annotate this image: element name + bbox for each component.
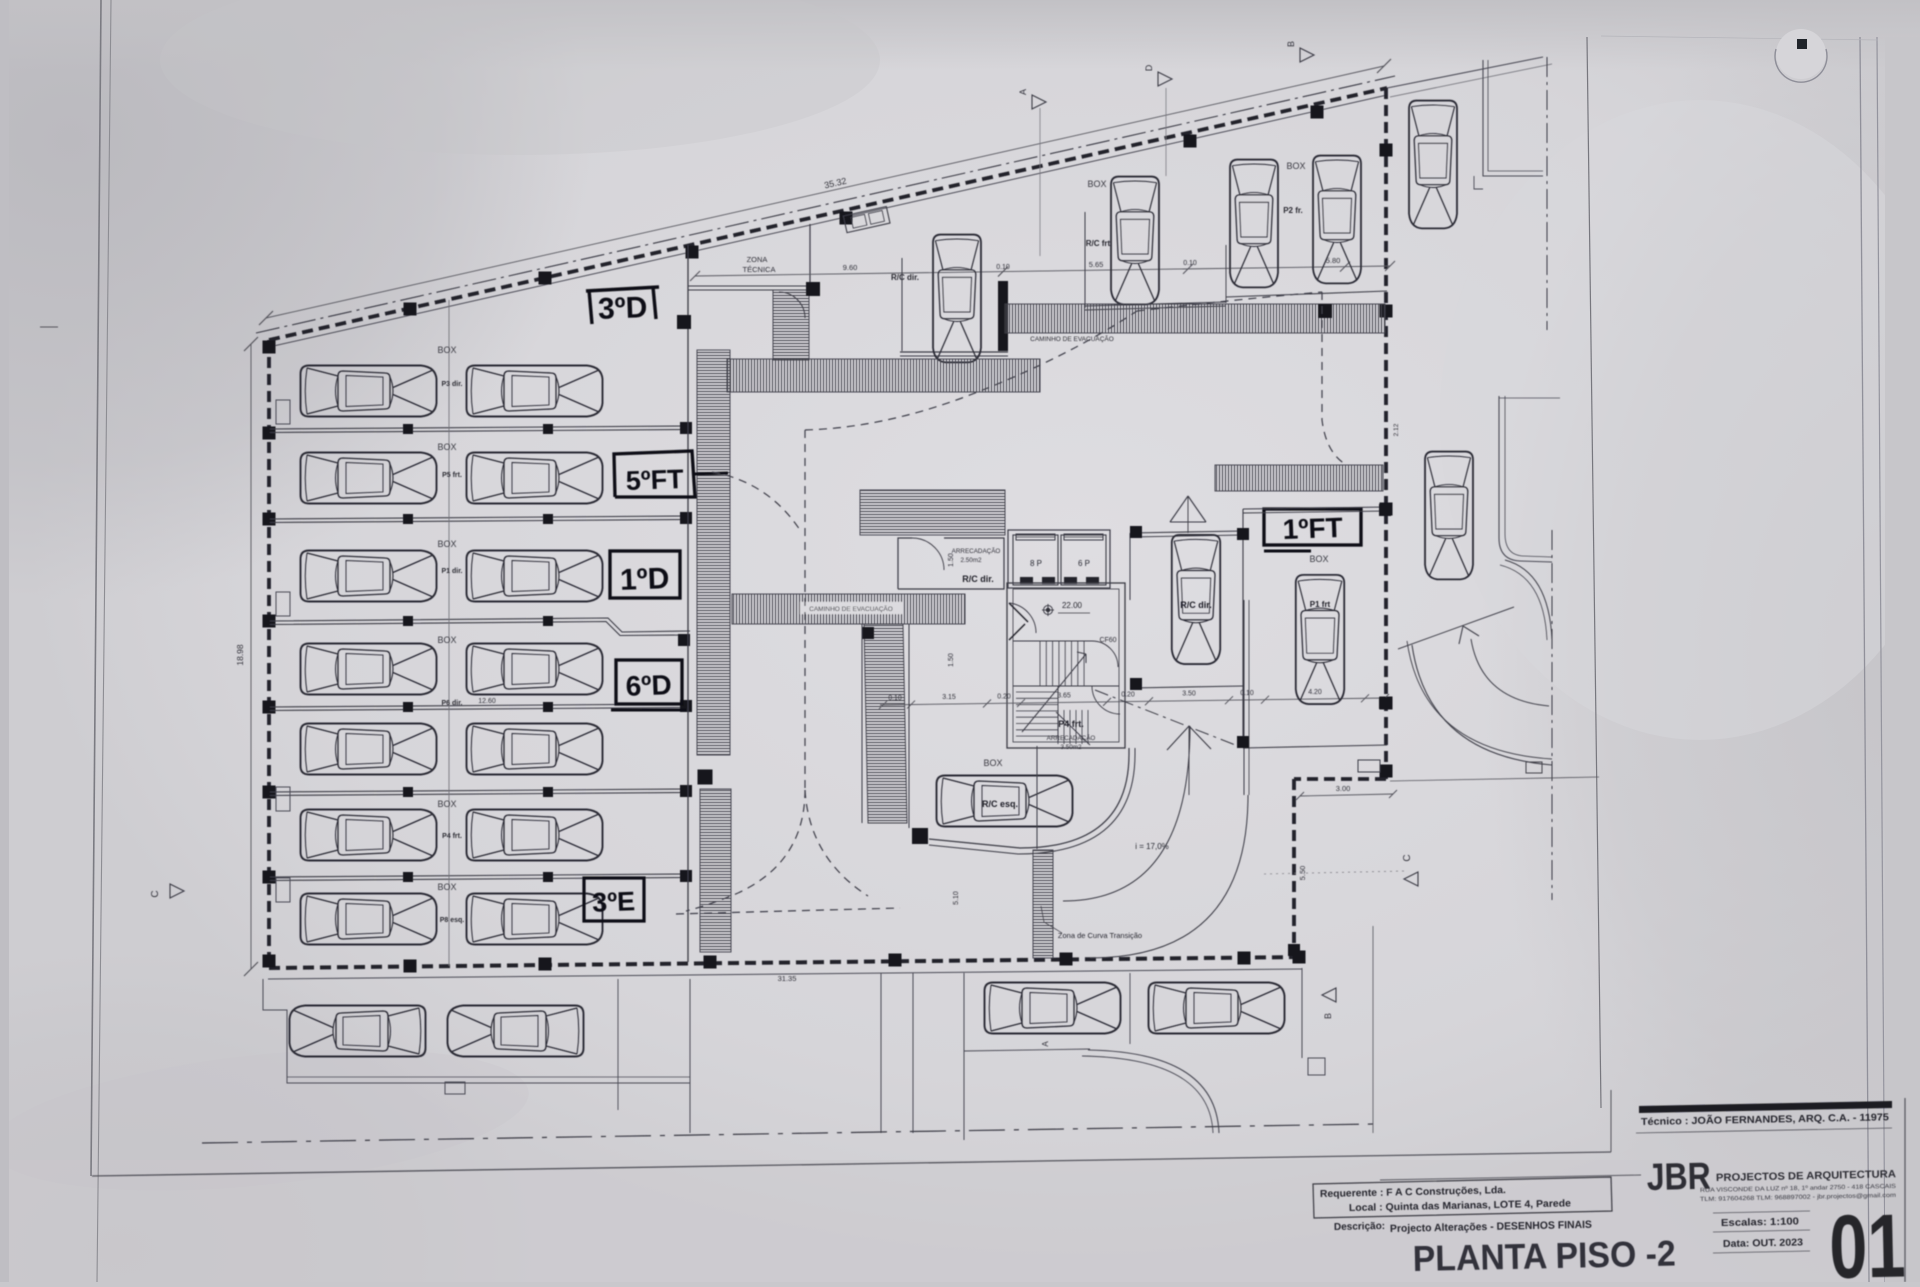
svg-text:ARRECADAÇÃO: ARRECADAÇÃO — [952, 546, 1001, 555]
svg-text:C: C — [1402, 854, 1413, 861]
svg-text:12.60: 12.60 — [478, 698, 496, 705]
svg-text:3.50m2: 3.50m2 — [1060, 744, 1082, 751]
svg-text:C: C — [150, 890, 161, 897]
svg-text:1ºFT: 1ºFT — [1282, 512, 1343, 545]
svg-text:0.20: 0.20 — [1121, 692, 1135, 699]
svg-text:5.80: 5.80 — [1326, 256, 1341, 265]
svg-text:P6 dir.: P6 dir. — [441, 700, 462, 707]
svg-text:BOX: BOX — [1087, 179, 1106, 189]
svg-text:R/C frt: R/C frt — [1086, 239, 1111, 248]
svg-text:Zona de Curva Transição: Zona de Curva Transição — [1058, 931, 1142, 940]
svg-text:3.15: 3.15 — [942, 694, 956, 701]
svg-text:0.10: 0.10 — [996, 264, 1010, 271]
svg-text:6 P: 6 P — [1078, 559, 1090, 568]
svg-text:0.10: 0.10 — [888, 695, 902, 702]
svg-text:P1 frt: P1 frt — [1310, 600, 1331, 609]
svg-text:1.50: 1.50 — [948, 653, 955, 667]
svg-text:R/C dir.: R/C dir. — [1180, 600, 1212, 610]
svg-text:i = 17,0%: i = 17,0% — [1135, 842, 1169, 851]
svg-text:0.10: 0.10 — [1240, 690, 1254, 697]
svg-text:5.10: 5.10 — [953, 891, 960, 905]
svg-text:8 P: 8 P — [1030, 559, 1042, 568]
svg-text:P1 dir.: P1 dir. — [441, 568, 462, 575]
svg-text:BOX: BOX — [437, 345, 456, 355]
svg-text:2.50m2: 2.50m2 — [960, 557, 982, 564]
svg-text:BOX: BOX — [437, 635, 456, 645]
svg-text:BOX: BOX — [437, 882, 456, 892]
svg-text:P2 fr.: P2 fr. — [1283, 206, 1303, 215]
svg-text:3ºE: 3ºE — [592, 886, 636, 917]
svg-text:R/C dir.: R/C dir. — [891, 273, 919, 282]
svg-text:CAMINHO DE EVACUAÇÃO: CAMINHO DE EVACUAÇÃO — [809, 604, 893, 613]
svg-text:P4 frt.: P4 frt. — [1058, 719, 1084, 729]
svg-text:ARRECADAÇÃO: ARRECADAÇÃO — [1047, 733, 1096, 742]
svg-text:BOX: BOX — [437, 539, 456, 549]
svg-text:R/C dir.: R/C dir. — [962, 574, 994, 584]
svg-text:Escalas: 1:100: Escalas: 1:100 — [1721, 1216, 1800, 1229]
svg-text:P3 dir.: P3 dir. — [441, 381, 462, 388]
svg-text:PLANTA PISO -2: PLANTA PISO -2 — [1412, 1232, 1676, 1278]
svg-text:D: D — [1144, 64, 1154, 71]
svg-text:31.35: 31.35 — [778, 974, 797, 983]
svg-text:CAMINHO DE EVACUAÇÃO: CAMINHO DE EVACUAÇÃO — [1030, 334, 1114, 343]
svg-text:22.00: 22.00 — [1062, 601, 1083, 610]
svg-text:BOX: BOX — [983, 758, 1002, 768]
svg-text:18.98: 18.98 — [235, 644, 245, 666]
svg-text:R/C esq.: R/C esq. — [982, 799, 1018, 809]
svg-text:5ºFT: 5ºFT — [625, 464, 684, 496]
svg-text:3.00: 3.00 — [1336, 784, 1351, 793]
svg-text:A: A — [1018, 89, 1028, 95]
svg-text:A: A — [1041, 1041, 1050, 1047]
svg-text:3ºD: 3ºD — [597, 291, 647, 326]
svg-text:5.50: 5.50 — [1298, 866, 1307, 881]
svg-text:BOX: BOX — [437, 799, 456, 809]
svg-text:0.10: 0.10 — [1183, 260, 1197, 267]
svg-text:BOX: BOX — [437, 442, 456, 452]
svg-text:B: B — [1286, 41, 1296, 47]
svg-text:Data: OUT. 2023: Data: OUT. 2023 — [1723, 1237, 1804, 1250]
svg-text:3.65: 3.65 — [1057, 692, 1071, 699]
svg-text:P8 esq.: P8 esq. — [440, 917, 465, 924]
svg-text:1ºD: 1ºD — [619, 562, 669, 597]
svg-text:TÉCNICA: TÉCNICA — [743, 265, 776, 274]
svg-text:B: B — [1323, 1013, 1333, 1019]
svg-text:3.50: 3.50 — [1182, 691, 1196, 698]
svg-text:Descrição:: Descrição: — [1334, 1221, 1385, 1233]
svg-text:BOX: BOX — [1286, 161, 1305, 171]
svg-text:01: 01 — [1828, 1196, 1906, 1282]
svg-text:4.20: 4.20 — [1308, 689, 1322, 696]
svg-text:P4 frt.: P4 frt. — [442, 833, 462, 840]
svg-text:1.50: 1.50 — [948, 553, 955, 567]
svg-text:P5 frt.: P5 frt. — [442, 472, 462, 479]
svg-text:2.12: 2.12 — [1393, 423, 1400, 436]
svg-text:9.60: 9.60 — [843, 263, 858, 272]
svg-text:5.65: 5.65 — [1089, 260, 1104, 269]
svg-text:CF60: CF60 — [1099, 637, 1116, 644]
svg-text:BOX: BOX — [1309, 554, 1328, 564]
svg-text:0.20: 0.20 — [997, 693, 1011, 700]
svg-text:ZONA: ZONA — [747, 255, 768, 264]
svg-text:6ºD: 6ºD — [625, 669, 672, 702]
